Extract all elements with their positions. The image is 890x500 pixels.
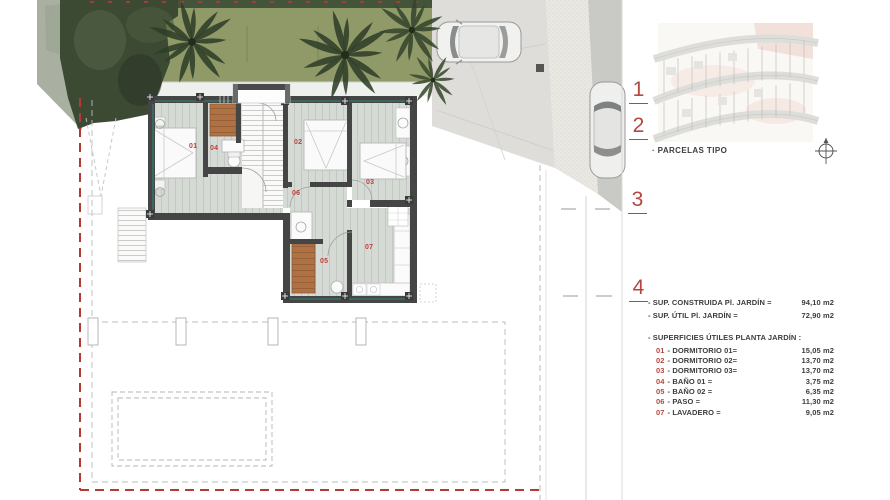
surfaces-heading: - SUPERFICIES ÚTILES PLANTA JARDÍN : (648, 333, 801, 342)
room-label-02: 02 (294, 139, 302, 146)
index-number-1: 1 (629, 79, 648, 104)
exterior-ramp (86, 118, 116, 214)
room-label-05: 05 (320, 258, 328, 265)
bed-03 (360, 143, 406, 179)
parcelas-tipo-caption: · PARCELAS TIPO (652, 146, 727, 155)
legend-row-bano-02: 05 - BAÑO 02 = 6,35 m2 (656, 387, 834, 396)
parcelas-site-thumbnail (654, 23, 818, 142)
room-label-04: 04 (210, 145, 218, 152)
useful-area-row: - SUP. ÚTIL Pl. JARDÍN = 72,90 m2 (648, 311, 834, 320)
built-area-value: 94,10 m2 (802, 298, 835, 307)
useful-area-label: - SUP. ÚTIL Pl. JARDÍN = (648, 311, 738, 320)
car-driveway (437, 20, 521, 64)
gate-post (536, 64, 544, 72)
useful-area-value: 72,90 m2 (802, 311, 835, 320)
legend-row-dormitorio-03: 03 - DORMITORIO 03= 13,70 m2 (656, 366, 834, 375)
room-label-01: 01 (189, 143, 197, 150)
legend-row-lavadero: 07 - LAVADERO = 9,05 m2 (656, 408, 834, 417)
built-area-row: - SUP. CONSTRUIDA Pl. JARDÍN = 94,10 m2 (648, 298, 834, 307)
toilet (331, 281, 343, 293)
floor-plan-drawing (0, 0, 890, 500)
exterior-stairs (118, 208, 146, 262)
legend-row-dormitorio-01: 01 - DORMITORIO 01= 15,05 m2 (656, 346, 834, 355)
sink (291, 212, 312, 242)
north-compass-icon (815, 138, 837, 164)
index-number-3: 3 (628, 189, 647, 214)
built-area-label: - SUP. CONSTRUIDA Pl. JARDÍN = (648, 298, 772, 307)
house (146, 84, 417, 303)
legend-row-paso: 06 - PASO = 11,30 m2 (656, 397, 834, 406)
legend-row-dormitorio-02: 02 - DORMITORIO 02= 13,70 m2 (656, 356, 834, 365)
staircase (242, 103, 283, 208)
room-label-07: 07 (365, 244, 373, 251)
index-number-4: 4 (629, 277, 648, 302)
index-number-2: 2 (629, 115, 648, 140)
legend-row-bano-01: 04 - BAÑO 01 = 3,75 m2 (656, 377, 834, 386)
room-label-03: 03 (366, 179, 374, 186)
architectural-sheet: 01 02 03 04 05 06 07 1 2 3 4 · PARCELAS … (0, 0, 890, 500)
bed-02 (304, 120, 348, 170)
car-road (590, 82, 625, 178)
room-label-06: 06 (292, 190, 300, 197)
